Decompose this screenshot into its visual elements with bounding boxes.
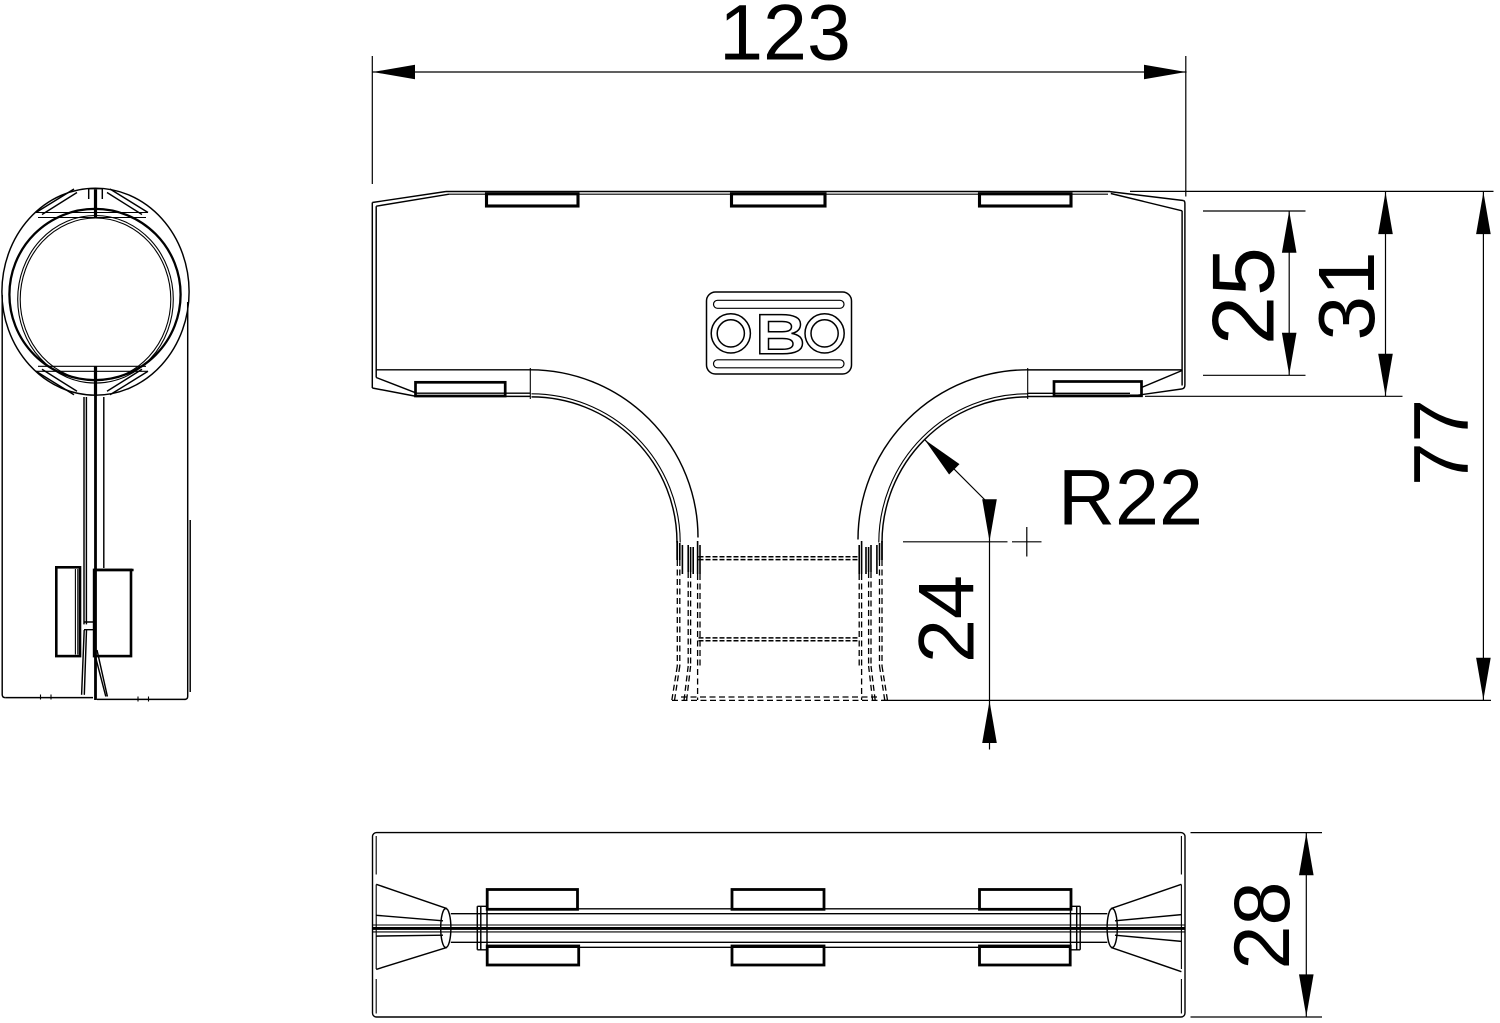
svg-text:123: 123 [719,0,851,77]
svg-text:77: 77 [1397,399,1485,486]
svg-text:31: 31 [1302,252,1391,341]
svg-text:25: 25 [1194,247,1293,345]
svg-text:R22: R22 [1058,453,1203,542]
svg-text:28: 28 [1217,882,1306,970]
svg-text:24: 24 [902,575,991,663]
